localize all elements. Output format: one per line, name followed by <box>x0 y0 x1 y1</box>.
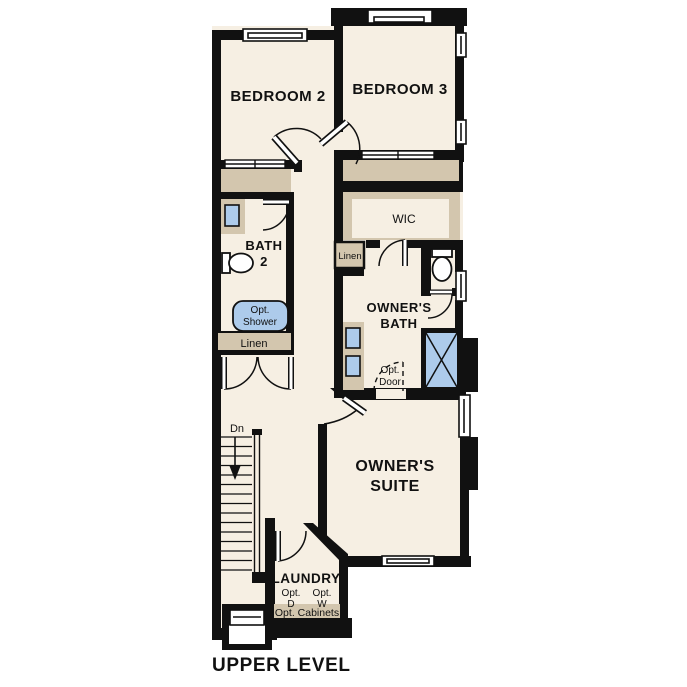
bedroom3-closet <box>343 160 459 181</box>
floor-plan-drawing: BEDROOM 2 BEDROOM 3 BATH 2 WIC Linen OWN… <box>0 0 687 687</box>
bedroom3-closet-slider <box>362 151 434 159</box>
floor-plan-page: BEDROOM 2 BEDROOM 3 BATH 2 WIC Linen OWN… <box>0 0 687 687</box>
owners-bath-label-line2: BATH <box>380 316 417 331</box>
hall-linen-label: Linen <box>241 338 268 350</box>
opt-dryer-label-line1: Opt. <box>282 588 301 599</box>
window-owners-suite-right <box>459 395 470 437</box>
window-bedroom3-right-upper <box>456 33 466 57</box>
window-bedroom3-bay <box>368 10 432 23</box>
owners-bath-label-line1: OWNER'S <box>366 300 431 315</box>
opt-shower-label-line2: Shower <box>243 317 278 328</box>
bedroom2-closet <box>221 169 291 192</box>
bath2-label-line1: BATH <box>245 238 282 253</box>
plan-title: UPPER LEVEL <box>212 655 351 676</box>
water-closet-toilet <box>432 249 452 281</box>
owners-linen-label: Linen <box>338 251 361 262</box>
owners-suite-label-line2: SUITE <box>370 478 420 495</box>
opt-door-label-line1: Opt. <box>381 365 400 376</box>
bedroom3-label: BEDROOM 3 <box>352 81 447 98</box>
owners-shower <box>421 328 462 392</box>
bath2-toilet <box>222 253 253 273</box>
stairs-dn-label: Dn <box>230 423 244 435</box>
bedroom2-label: BEDROOM 2 <box>230 88 325 105</box>
window-stair-bay <box>229 610 265 644</box>
window-owners-bath-right <box>456 271 466 301</box>
wic-label: WIC <box>392 212 416 226</box>
opt-shower-label-line1: Opt. <box>251 305 270 316</box>
bath2-sink <box>225 205 239 226</box>
window-bedroom3-right-lower <box>456 120 466 144</box>
bath2-label-line2: 2 <box>260 254 268 269</box>
window-bedroom2-top <box>243 29 307 41</box>
owners-sink-2 <box>346 356 360 376</box>
opt-door-label-line2: Door <box>379 377 401 388</box>
owners-sink-1 <box>346 328 360 348</box>
owners-suite-label-line1: OWNER'S <box>355 458 434 475</box>
laundry-label: LAUNDRY <box>272 571 341 586</box>
opt-washer-label-line1: Opt. <box>313 588 332 599</box>
bedroom2-closet-slider <box>225 160 285 168</box>
window-owners-suite-bottom <box>382 556 434 566</box>
opt-cabinets-label: Opt. Cabinets <box>275 607 339 619</box>
